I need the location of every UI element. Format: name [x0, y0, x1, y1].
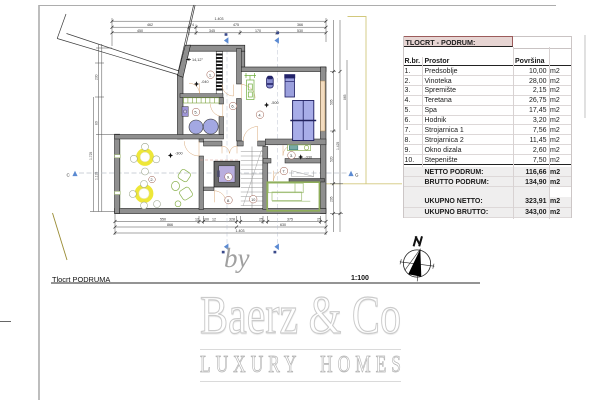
svg-text:866: 866 — [167, 223, 173, 227]
svg-text:375: 375 — [287, 218, 293, 222]
svg-text:8.: 8. — [227, 198, 230, 203]
svg-text:-330: -330 — [305, 156, 313, 160]
svg-text:1.403: 1.403 — [236, 229, 245, 233]
svg-text:520: 520 — [330, 156, 334, 162]
svg-text:2.: 2. — [150, 177, 153, 182]
svg-text:595: 595 — [330, 99, 334, 105]
svg-text:80: 80 — [95, 121, 99, 125]
svg-text:475: 475 — [233, 23, 239, 27]
svg-text:345: 345 — [209, 29, 215, 33]
svg-text:G: G — [355, 173, 359, 178]
svg-text:25: 25 — [259, 218, 263, 222]
svg-text:170: 170 — [255, 29, 261, 33]
svg-text:12: 12 — [212, 218, 216, 222]
svg-text:7.: 7. — [282, 169, 285, 174]
svg-text:100: 100 — [203, 218, 209, 222]
svg-text:6.: 6. — [231, 104, 234, 109]
svg-text:3.: 3. — [290, 153, 293, 158]
svg-text:366: 366 — [297, 23, 303, 27]
svg-text:74: 74 — [190, 23, 194, 27]
svg-text:14,12°: 14,12° — [192, 58, 204, 62]
svg-text:328: 328 — [229, 218, 235, 222]
svg-text:630: 630 — [280, 223, 286, 227]
svg-text:865: 865 — [343, 94, 347, 100]
svg-text:5.: 5. — [194, 110, 197, 115]
svg-text:-300: -300 — [175, 151, 183, 155]
svg-text:530: 530 — [297, 29, 303, 33]
svg-text:-500: -500 — [271, 101, 279, 105]
svg-text:1.725: 1.725 — [89, 152, 93, 160]
svg-text:12: 12 — [195, 218, 199, 222]
svg-text:550: 550 — [160, 218, 166, 222]
svg-text:1.425: 1.425 — [336, 142, 340, 150]
svg-text:25: 25 — [317, 218, 321, 222]
svg-text:1.: 1. — [209, 72, 212, 77]
svg-text:295: 295 — [330, 196, 334, 202]
svg-text:230: 230 — [95, 74, 99, 80]
svg-text:-040: -040 — [201, 80, 209, 84]
svg-text:1.403: 1.403 — [215, 17, 224, 21]
svg-text:C: C — [67, 173, 71, 178]
svg-text:10: 10 — [251, 198, 255, 202]
svg-text:462: 462 — [147, 23, 153, 27]
svg-text:4.: 4. — [258, 112, 261, 117]
svg-text:9.: 9. — [227, 175, 230, 180]
svg-text:450: 450 — [137, 29, 143, 33]
